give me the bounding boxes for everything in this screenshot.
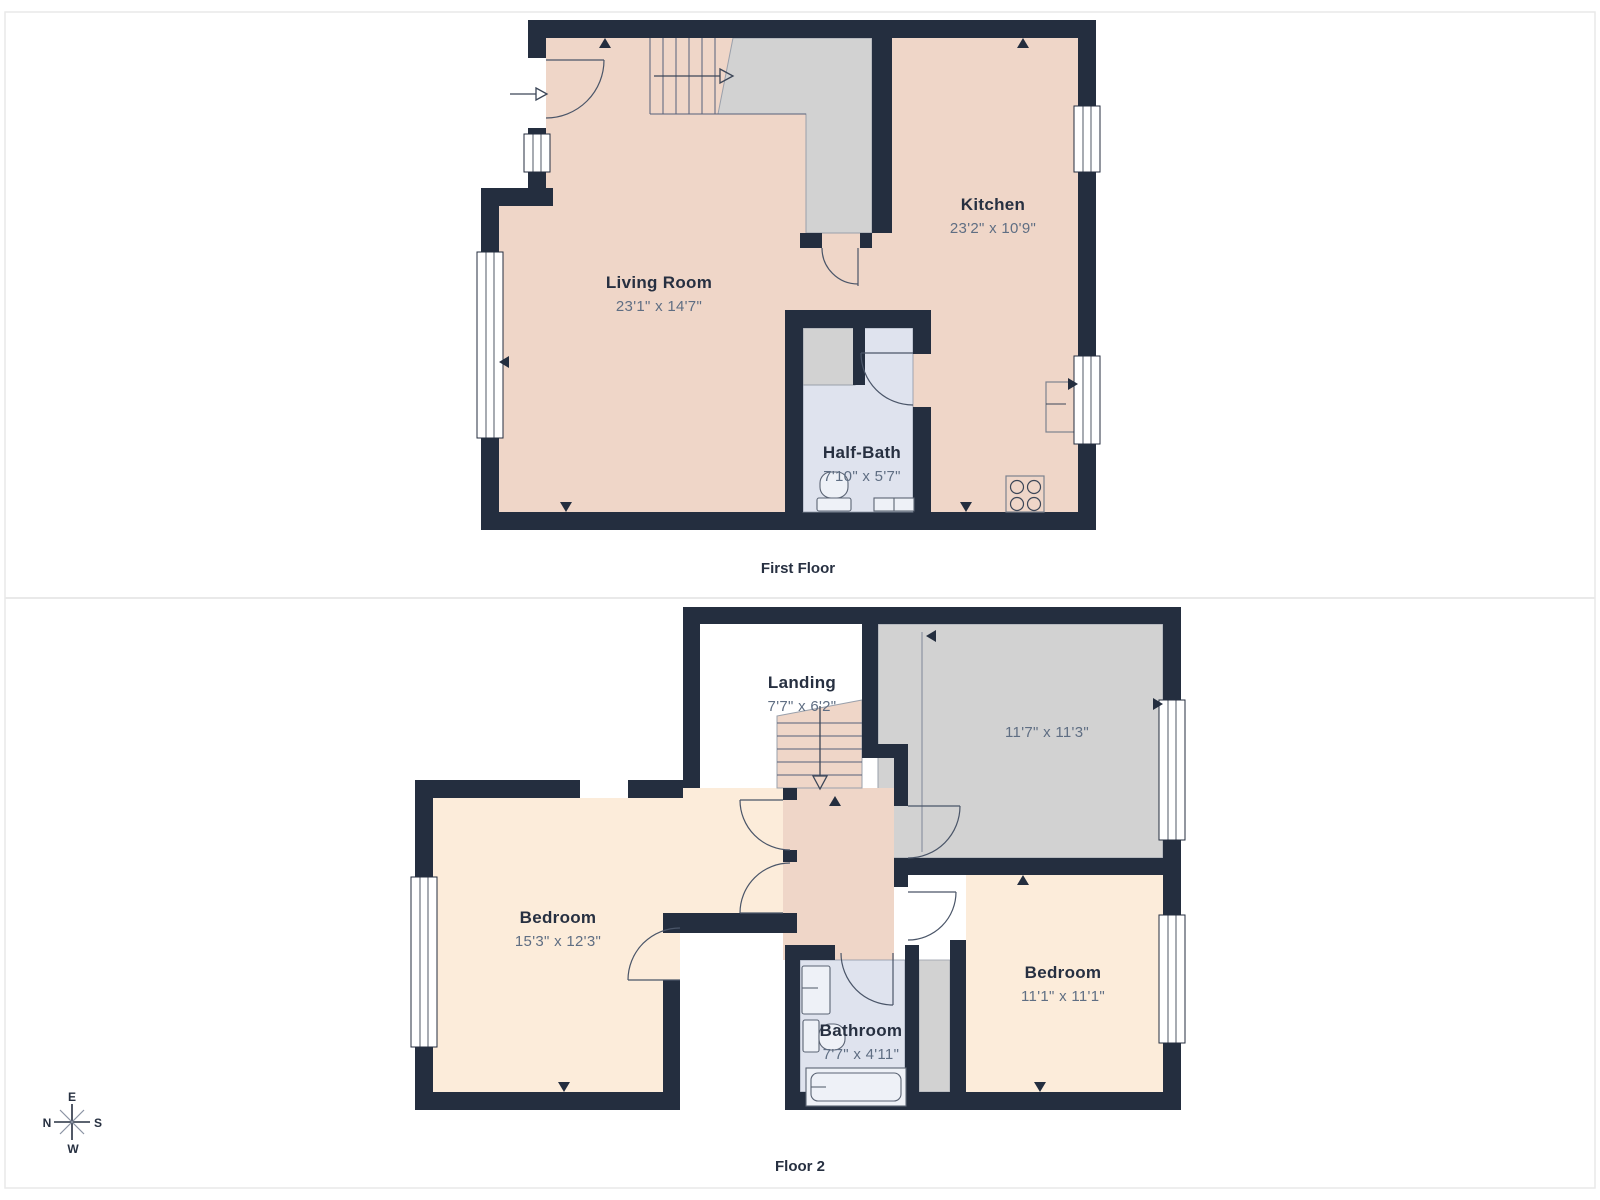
bedroom-left-label: Bedroom 15'3" x 12'3" <box>515 905 601 953</box>
compass-east-label: E <box>68 1090 76 1104</box>
bedroom-right-label: Bedroom 11'1" x 11'1" <box>1021 960 1105 1008</box>
compass-west-label: W <box>67 1142 78 1156</box>
bathroom-label: Bathroom 7'7" x 4'11" <box>820 1018 903 1066</box>
room-dims: 15'3" x 12'3" <box>515 931 601 954</box>
window <box>1159 915 1185 1043</box>
compass-icon <box>54 1104 90 1140</box>
sink-icon <box>874 498 914 511</box>
room-title: Kitchen <box>950 192 1036 218</box>
half-bath-label: Half-Bath 7'10" x 5'7" <box>823 440 901 488</box>
kitchen-label: Kitchen 23'2" x 10'9" <box>950 192 1036 240</box>
bathroom-sink-icon <box>802 966 830 1014</box>
half-bath-closet <box>803 328 855 385</box>
room-dims: 7'7" x 6'2" <box>768 696 837 719</box>
fridge-icon <box>1046 382 1078 432</box>
bathtub-icon <box>806 1068 906 1106</box>
entry-arrow-icon <box>510 88 547 100</box>
window <box>1074 356 1100 444</box>
room-title: Bedroom <box>1021 960 1105 986</box>
hallway-floor <box>783 788 894 960</box>
unlabeled-room-label: 11'7" x 11'3" <box>1005 722 1089 745</box>
room-title: Bathroom <box>820 1018 903 1044</box>
window <box>524 134 550 172</box>
window <box>1074 106 1100 172</box>
landing-label: Landing 7'7" x 6'2" <box>768 670 837 718</box>
room-title: Living Room <box>606 270 712 296</box>
bedroom-left-alcove <box>664 788 783 913</box>
living-room-label: Living Room 23'1" x 14'7" <box>606 270 712 318</box>
floor-2-caption: Floor 2 <box>775 1158 825 1175</box>
room-dims: 11'1" x 11'1" <box>1021 986 1105 1009</box>
stove-icon <box>1006 476 1044 512</box>
compass-north-label: N <box>43 1116 52 1130</box>
room-title: Half-Bath <box>823 440 901 466</box>
room-dims: 11'7" x 11'3" <box>1005 722 1089 745</box>
room-title: Landing <box>768 670 837 696</box>
room-title: Bedroom <box>515 905 601 931</box>
window <box>1159 700 1185 840</box>
room-dims: 7'10" x 5'7" <box>823 466 901 489</box>
room-dims: 23'2" x 10'9" <box>950 218 1036 241</box>
floorplan-drawing <box>0 0 1600 1200</box>
floorplan-canvas: Living Room 23'1" x 14'7" Kitchen 23'2" … <box>0 0 1600 1200</box>
compass-south-label: S <box>94 1116 102 1130</box>
window <box>411 877 437 1047</box>
first-floor-caption: First Floor <box>761 560 835 577</box>
room-dims: 23'1" x 14'7" <box>606 296 712 319</box>
window <box>477 252 503 438</box>
bedroom-right-door <box>908 892 956 940</box>
closet-floor <box>919 960 950 1092</box>
room-dims: 7'7" x 4'11" <box>820 1044 903 1067</box>
first-floor-plan <box>477 20 1100 530</box>
